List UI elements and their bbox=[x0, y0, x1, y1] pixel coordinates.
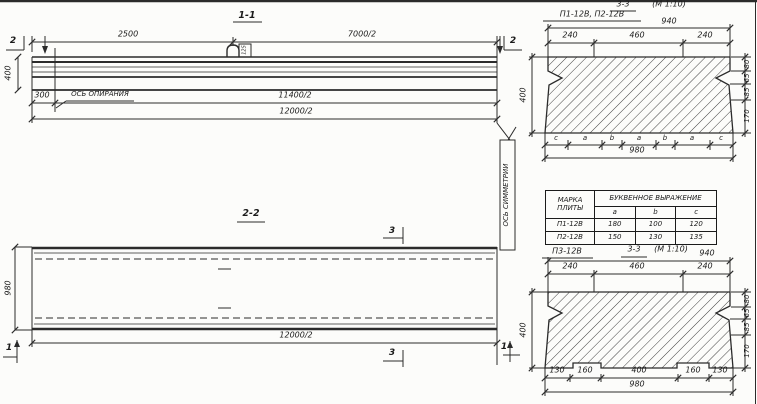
dim-240-b: 240 bbox=[697, 32, 712, 41]
dim-980-left: 980 bbox=[5, 280, 14, 295]
table-header-expression: БУКВЕННОЕ ВЫРАЖЕНИЕ bbox=[595, 191, 717, 207]
table-row: П1-12В 180 100 120 bbox=[546, 219, 717, 232]
section-title-3-3-top: 3-3 bbox=[616, 1, 629, 10]
dim-400-left: 400 bbox=[5, 65, 14, 80]
plate-marks-top: П1-12В, П2-12В bbox=[560, 11, 624, 20]
dim-400-sec-top: 400 bbox=[520, 87, 529, 102]
letter-a-1: a bbox=[583, 135, 587, 143]
letter-a-3: a bbox=[690, 135, 694, 143]
dim-130-b: 130 bbox=[712, 367, 727, 376]
dim-940-bottom: 940 bbox=[699, 250, 714, 259]
section-title-2-2: 2-2 bbox=[242, 209, 259, 219]
dim-right-65: 65 bbox=[744, 74, 752, 83]
dim-right-85: 85 bbox=[744, 88, 752, 97]
table-col-c: c bbox=[676, 207, 717, 219]
section-2-2-drawing bbox=[3, 127, 520, 367]
dim-980-sec-bottom: 980 bbox=[629, 381, 644, 390]
table-cell-c: 135 bbox=[676, 232, 717, 245]
dim-right-80-b: 80 bbox=[744, 295, 752, 304]
dim-300: 300 bbox=[34, 92, 49, 101]
letter-b-2: b bbox=[663, 135, 667, 143]
table-header-mark: МАРКА ПЛИТЫ bbox=[546, 191, 595, 219]
table-col-a: a bbox=[595, 207, 636, 219]
dim-240-d: 240 bbox=[697, 263, 712, 272]
dim-400-mid: 400 bbox=[631, 367, 646, 376]
section-title-3-3-bottom: 3-3 bbox=[627, 246, 640, 255]
dim-980-sec-top: 980 bbox=[629, 147, 644, 156]
plate-mark-p3: П3-12В bbox=[552, 248, 582, 257]
symmetry-axis-label: ОСЬ СИММЕТРИИ bbox=[503, 163, 511, 226]
dim-12000-2: 12000/2 bbox=[279, 108, 312, 117]
dim-460-a: 460 bbox=[629, 32, 644, 41]
table-col-b: b bbox=[635, 207, 676, 219]
table-cell-a: 150 bbox=[595, 232, 636, 245]
letter-a-2: a bbox=[637, 135, 641, 143]
section-scale-bottom: (М 1:10) bbox=[654, 246, 688, 255]
cut-mark-2-left: 2 bbox=[10, 37, 16, 47]
section-scale-top: (М 1:10) bbox=[652, 1, 686, 10]
dim-2500: 2500 bbox=[118, 31, 138, 40]
dim-11400-2: 11400/2 bbox=[278, 92, 311, 101]
drawing-sheet: 1-1 2500 7000/2 2 2 400 300 ОСЬ ОПИРАНИЯ… bbox=[0, 0, 757, 404]
table-cell-b: 100 bbox=[635, 219, 676, 232]
dim-240-a: 240 bbox=[562, 32, 577, 41]
dim-240-c: 240 bbox=[562, 263, 577, 272]
dim-160-a: 160 bbox=[577, 367, 592, 376]
cut-mark-3-bottom: 3 bbox=[389, 349, 395, 359]
plate-spec-table: МАРКА ПЛИТЫ БУКВЕННОЕ ВЫРАЖЕНИЕ a b c П1… bbox=[545, 190, 717, 245]
letter-c-2: c bbox=[719, 135, 723, 143]
table-cell-a: 180 bbox=[595, 219, 636, 232]
table-cell-mark: П2-12В bbox=[546, 232, 595, 245]
table-cell-b: 130 bbox=[635, 232, 676, 245]
letter-b-1: b bbox=[610, 135, 614, 143]
dim-160-b: 160 bbox=[685, 367, 700, 376]
cut-mark-1-right: 1 bbox=[501, 343, 507, 353]
letter-c-1: c bbox=[554, 135, 558, 143]
section-1-1-drawing bbox=[6, 22, 522, 140]
cut-mark-3-top: 3 bbox=[389, 227, 395, 237]
dim-right-85-b: 85 bbox=[744, 323, 752, 332]
dim-7000-2: 7000/2 bbox=[348, 31, 376, 40]
dim-length-12000-2: 12000/2 bbox=[279, 332, 312, 341]
dim-460-b: 460 bbox=[629, 263, 644, 272]
cut-mark-2-right: 2 bbox=[510, 37, 516, 47]
cut-mark-1-left: 1 bbox=[6, 344, 12, 354]
support-axis-label: ОСЬ ОПИРАНИЯ bbox=[71, 91, 129, 99]
dim-right-80: 80 bbox=[744, 60, 752, 69]
dim-right-65-b: 65 bbox=[744, 309, 752, 318]
section-title-1-1: 1-1 bbox=[238, 11, 255, 21]
table-row: П2-12В 150 130 135 bbox=[546, 232, 717, 245]
dim-right-170-b: 170 bbox=[744, 344, 752, 357]
dim-400-sec-bottom: 400 bbox=[520, 322, 529, 337]
dim-right-170: 170 bbox=[744, 109, 752, 122]
loop-mark-label: 125 bbox=[242, 45, 248, 55]
table-cell-c: 120 bbox=[676, 219, 717, 232]
dim-940-top: 940 bbox=[661, 18, 676, 27]
table-cell-mark: П1-12В bbox=[546, 219, 595, 232]
dim-130-a: 130 bbox=[549, 367, 564, 376]
